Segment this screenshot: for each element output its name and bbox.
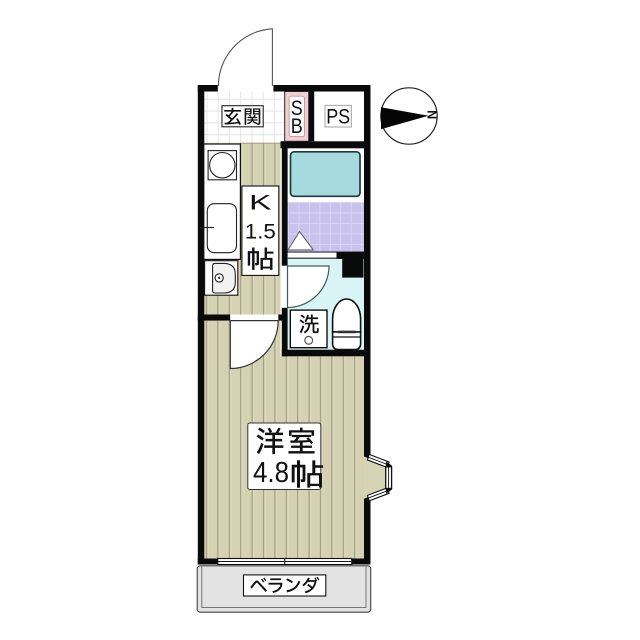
svg-text:4.8: 4.8 xyxy=(253,457,289,489)
svg-text:K: K xyxy=(249,190,272,214)
svg-text:1.5: 1.5 xyxy=(245,220,276,244)
svg-text:B: B xyxy=(291,115,303,138)
svg-text:N: N xyxy=(425,110,439,119)
svg-text:PS: PS xyxy=(326,104,350,128)
